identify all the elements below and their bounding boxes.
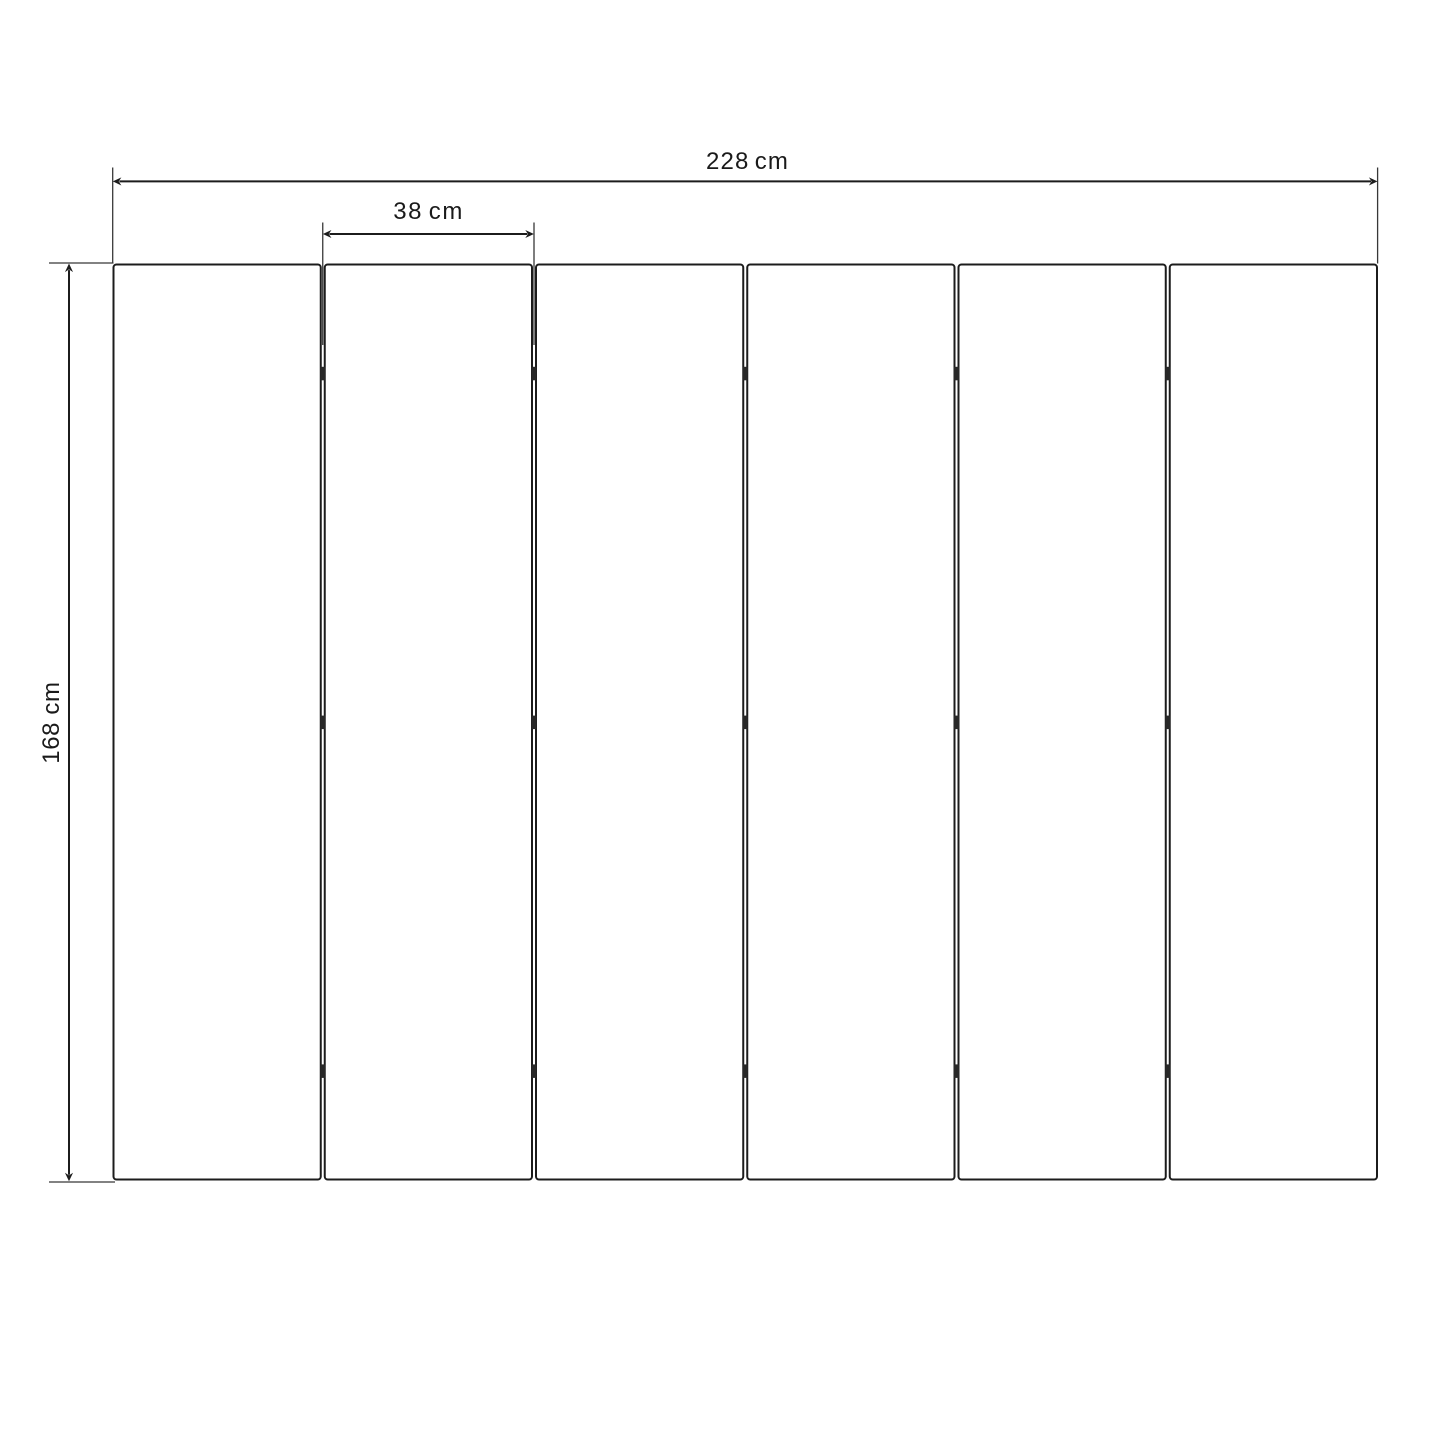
svg-text:228 cm: 228 cm xyxy=(706,148,789,175)
svg-text:168 cm: 168 cm xyxy=(38,681,65,763)
svg-text:38 cm: 38 cm xyxy=(393,198,464,225)
